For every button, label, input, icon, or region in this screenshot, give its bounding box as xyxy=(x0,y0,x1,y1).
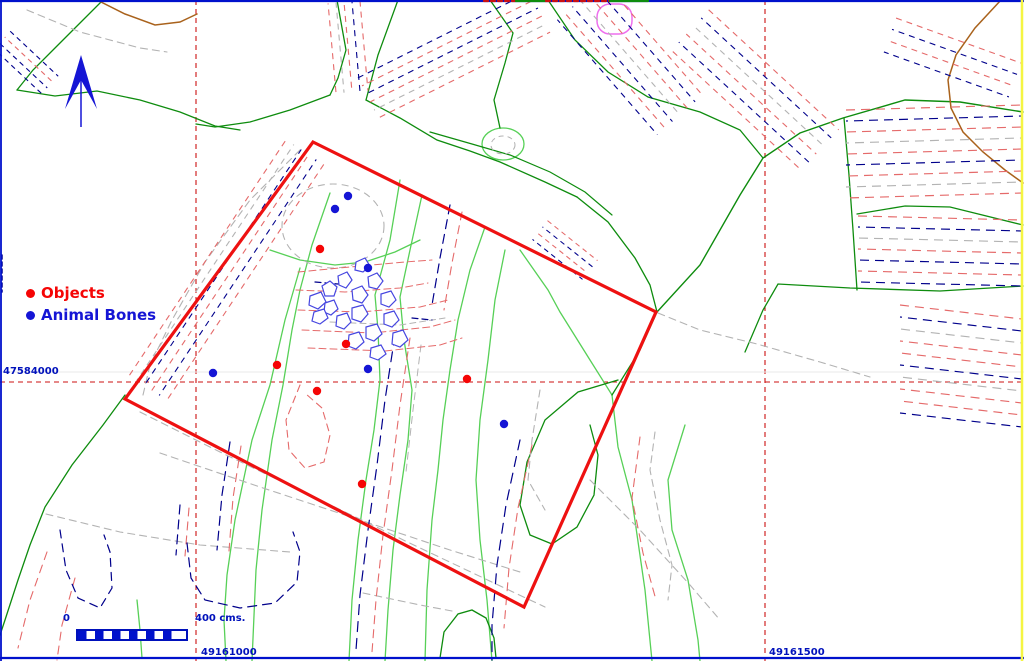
hatch-loop xyxy=(60,530,112,608)
contour-line xyxy=(0,395,125,635)
hatch-rows xyxy=(858,227,1022,231)
hatch-rows xyxy=(858,271,1022,275)
hatch-band xyxy=(565,13,665,128)
hatch-band xyxy=(884,52,1009,97)
hatch-rows xyxy=(858,260,1022,264)
hatch-band xyxy=(892,29,1017,74)
hatch-column xyxy=(632,437,656,600)
hatch-loop xyxy=(187,532,300,608)
stone-outline xyxy=(352,286,368,303)
hatch-rows xyxy=(900,317,1022,331)
hatch-band xyxy=(595,0,695,102)
scalebar-zero-label: 0 xyxy=(63,613,70,624)
stone-outline xyxy=(392,330,408,347)
objects-legend-label: Objects xyxy=(41,284,105,302)
hatch-rows xyxy=(900,329,1022,343)
hatch-band xyxy=(370,16,542,102)
site-map: Objects Animal Bones 47584000 49161000 4… xyxy=(0,0,1024,661)
hatch-band xyxy=(167,164,324,400)
coordinate-label-easting: 47584000 xyxy=(3,366,59,377)
contour-line xyxy=(385,195,422,661)
stone-outline xyxy=(348,332,364,349)
hatch-rows xyxy=(900,377,1022,391)
hatch-band xyxy=(378,32,550,118)
animal-bones-legend-label: Animal Bones xyxy=(41,306,156,324)
hatch-column xyxy=(372,338,410,652)
contour-line xyxy=(366,0,398,100)
contour-line xyxy=(490,0,513,128)
contour-line xyxy=(657,100,1023,312)
scale-bar xyxy=(76,629,188,641)
hatch-rows xyxy=(846,138,1022,143)
contour-line xyxy=(476,250,505,661)
legend: Objects Animal Bones xyxy=(26,284,156,324)
hatch-band xyxy=(159,159,316,395)
contour-ellipse xyxy=(482,128,524,160)
hatch-column xyxy=(444,212,462,310)
animal-bones-legend-dot xyxy=(26,311,35,320)
contour-line xyxy=(270,240,420,265)
hatch-rows xyxy=(900,413,1022,427)
hatch-band xyxy=(0,49,42,94)
hatch-rows xyxy=(900,305,1022,319)
bone-dot xyxy=(364,264,372,272)
contour-ellipse xyxy=(282,184,384,268)
contour-line xyxy=(577,197,657,395)
hatch-rows xyxy=(900,341,1022,355)
hatch-band xyxy=(137,145,294,381)
object-dot xyxy=(463,375,471,383)
hatch-band xyxy=(686,34,816,154)
bone-dot xyxy=(364,365,372,373)
hatch-rows xyxy=(900,401,1022,415)
object-dot xyxy=(316,245,324,253)
hatch-row xyxy=(308,338,462,351)
stream-line xyxy=(97,0,197,25)
hatch-rows xyxy=(846,116,1022,121)
object-dot xyxy=(342,340,350,348)
object-dot xyxy=(313,387,321,395)
hatch-band xyxy=(572,7,672,122)
bone-dot xyxy=(209,369,217,377)
hatch-column xyxy=(432,205,450,305)
contour-line xyxy=(548,0,763,158)
contour-line xyxy=(17,0,103,90)
hatch-rows xyxy=(858,249,1022,253)
hatch-band xyxy=(709,10,839,130)
hatch-band xyxy=(580,0,680,115)
bone-dot xyxy=(500,420,508,428)
hatch-column xyxy=(492,440,520,660)
hatch-column xyxy=(176,505,180,555)
excavation-square xyxy=(125,142,656,607)
bone-dot xyxy=(331,205,339,213)
hatch-band xyxy=(694,26,824,146)
stone-outline xyxy=(381,291,396,307)
contour-ellipse xyxy=(491,136,515,154)
legend-row-objects: Objects xyxy=(26,284,156,302)
contour-line xyxy=(857,206,1023,225)
hatch-row xyxy=(412,318,432,320)
hatch-band xyxy=(129,140,286,376)
hatch-loop xyxy=(286,385,330,468)
contour-line xyxy=(745,284,1023,352)
contour-line xyxy=(440,610,496,658)
legend-row-animal-bones: Animal Bones xyxy=(26,306,156,324)
hatch-rows xyxy=(858,216,1022,220)
stream-line xyxy=(948,0,1023,183)
contour-line xyxy=(668,425,700,661)
hatch-band xyxy=(557,20,657,135)
contour-line xyxy=(844,118,857,290)
hatch-band xyxy=(888,41,1013,86)
contour-line xyxy=(590,480,720,620)
contour-line xyxy=(612,395,652,661)
stone-outline xyxy=(312,309,328,324)
hatch-band xyxy=(896,18,1021,63)
objects-legend-dot xyxy=(26,289,35,298)
contour-line xyxy=(46,514,290,552)
hatch-band xyxy=(360,1,368,91)
coordinate-label-northing-2: 49161500 xyxy=(769,647,825,658)
object-dot xyxy=(273,361,281,369)
contour-line xyxy=(658,313,870,377)
stone-outline xyxy=(309,292,326,309)
hatch-rows xyxy=(846,149,1022,154)
contour-line xyxy=(520,250,612,395)
stone-outline xyxy=(384,311,399,327)
hatch-band xyxy=(152,154,309,390)
hatch-band xyxy=(679,42,809,162)
hatch-band xyxy=(671,50,801,170)
hatch-column xyxy=(185,508,189,556)
hatch-band xyxy=(588,0,688,108)
hatch-rows xyxy=(846,127,1022,132)
contour-line xyxy=(425,227,485,661)
stone-outline xyxy=(338,272,352,288)
hatch-rows xyxy=(846,171,1022,176)
contour-line xyxy=(196,95,330,127)
hatch-band xyxy=(603,0,703,95)
map-drawing xyxy=(0,0,1024,661)
hatch-column xyxy=(217,442,230,550)
hatch-rows xyxy=(900,389,1022,403)
contour-line xyxy=(349,180,400,661)
contour-line xyxy=(224,268,300,661)
stone-outline xyxy=(370,345,386,360)
hatch-band xyxy=(328,3,336,93)
coordinate-label-northing-1: 49161000 xyxy=(201,647,257,658)
contour-line xyxy=(520,380,618,544)
stone-outline xyxy=(352,305,368,322)
hatch-rows xyxy=(846,182,1022,187)
hatch-rows xyxy=(900,353,1022,367)
contour-line xyxy=(650,432,672,600)
hatch-rows xyxy=(858,282,1022,286)
bone-dot xyxy=(344,192,352,200)
contour-line xyxy=(17,90,240,130)
hatch-rows xyxy=(858,238,1022,242)
hatch-band xyxy=(701,18,831,138)
object-dot xyxy=(358,480,366,488)
stone-outline xyxy=(366,324,382,341)
scalebar-end-label: 400 cms. xyxy=(195,613,245,624)
contour-line xyxy=(27,10,167,52)
stone-outline xyxy=(336,313,351,329)
hatch-band xyxy=(547,221,597,261)
hatch-rows xyxy=(846,193,1022,198)
scale-bar-cells xyxy=(78,631,180,639)
